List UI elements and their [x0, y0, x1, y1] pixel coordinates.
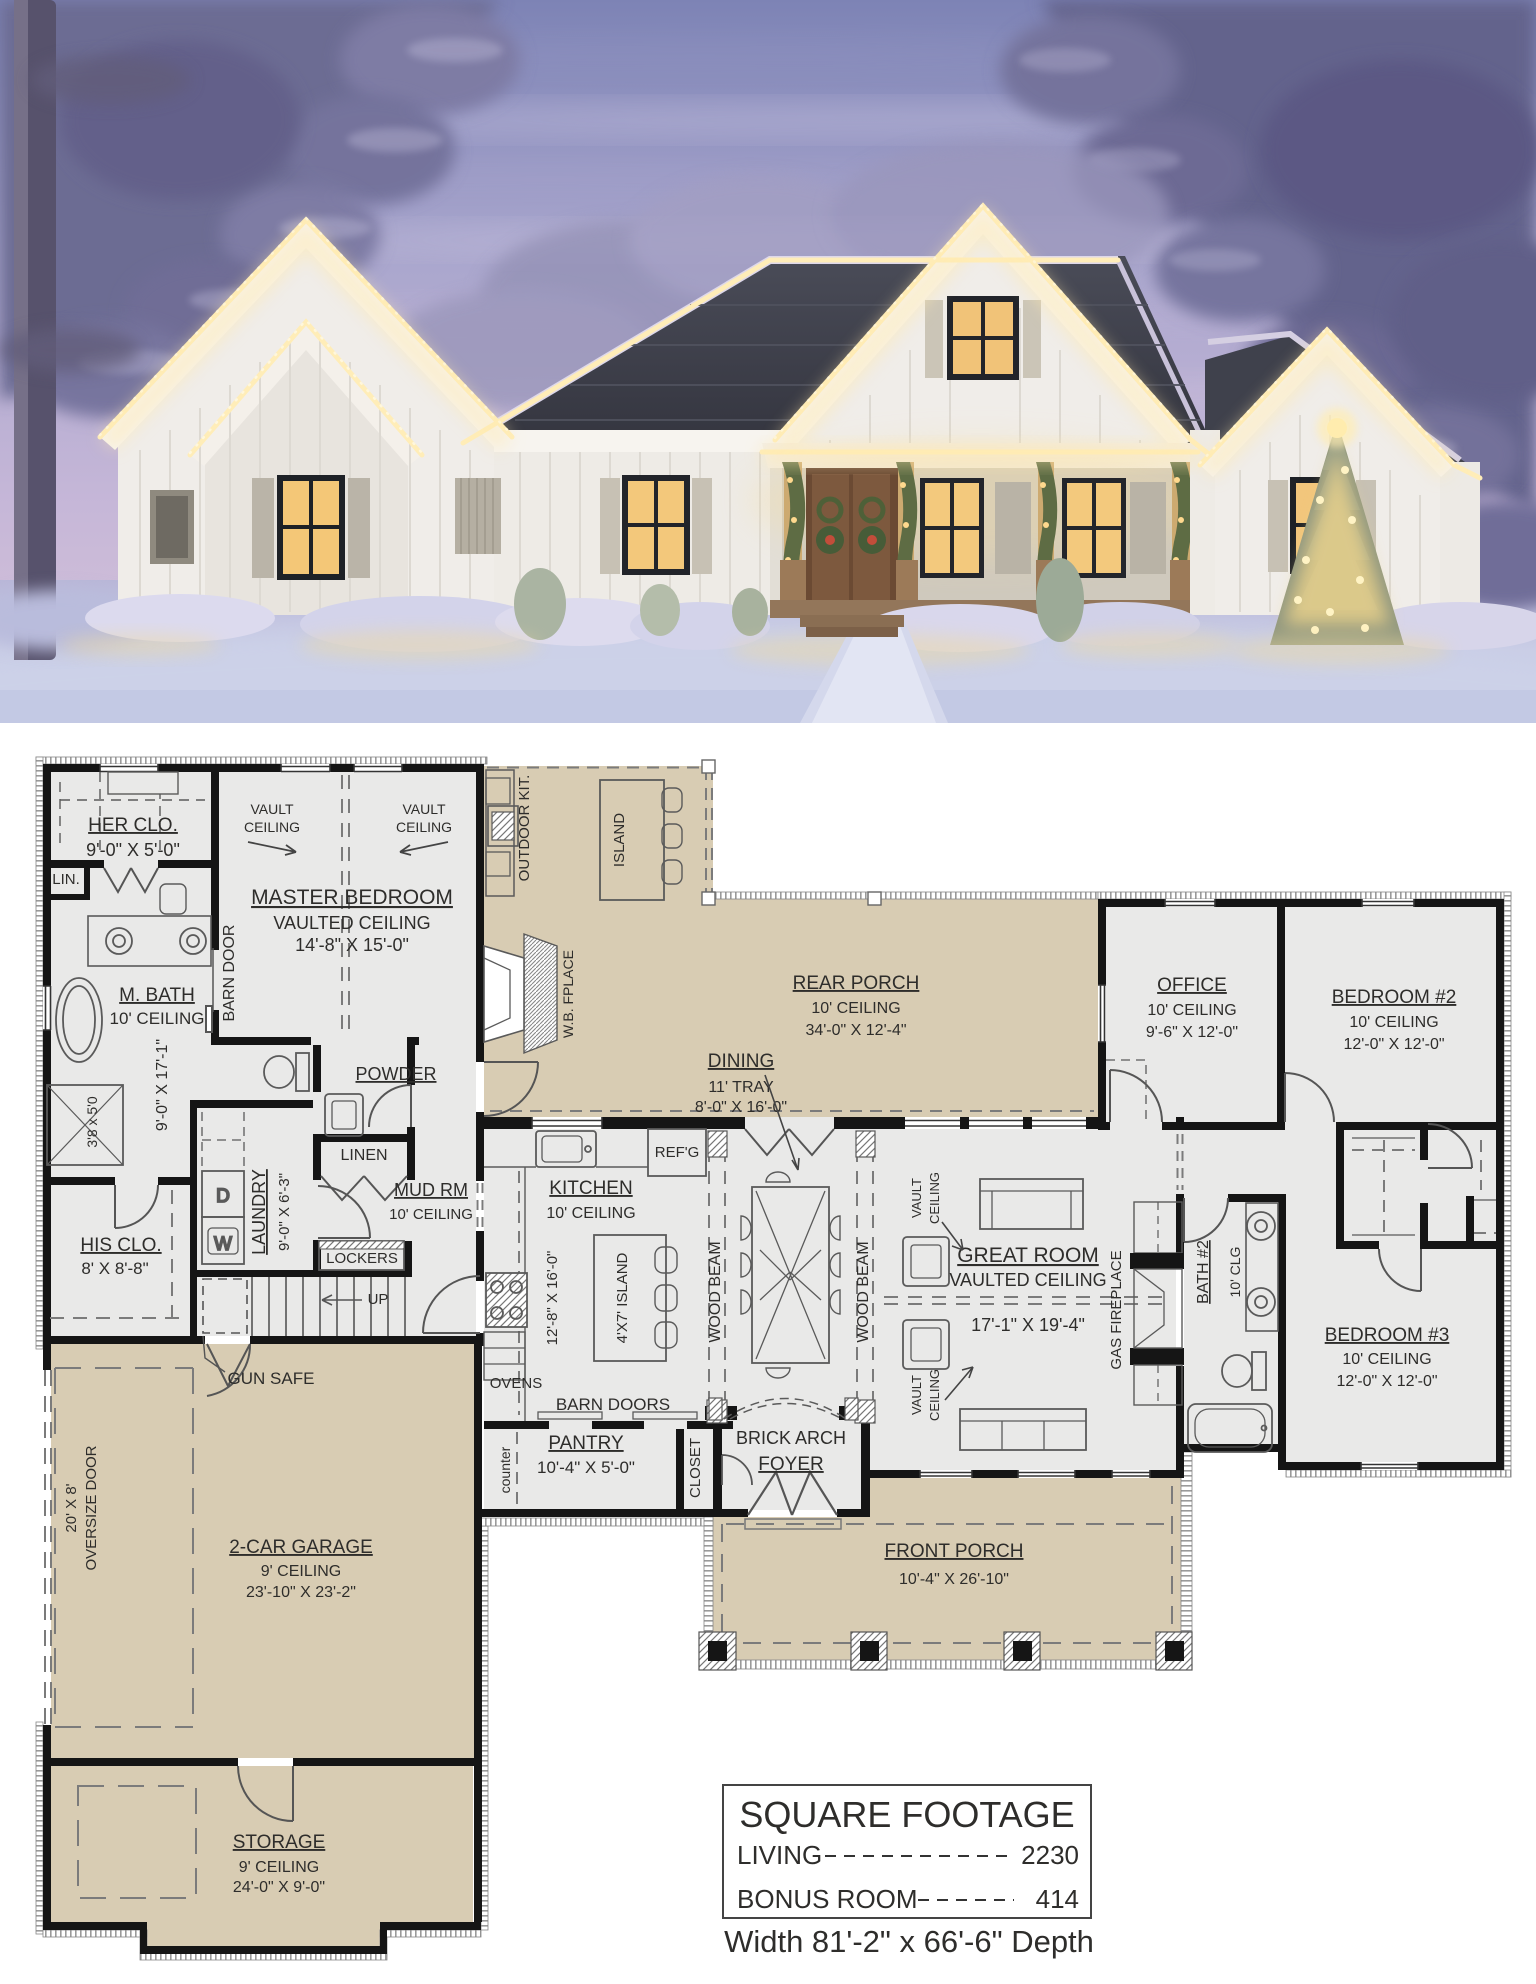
svg-text:BEDROOM #3: BEDROOM #3	[1325, 1325, 1450, 1346]
svg-text:10' CEILING: 10' CEILING	[1349, 1014, 1438, 1031]
svg-text:20' X 8': 20' X 8'	[63, 1483, 80, 1532]
svg-text:KITCHEN: KITCHEN	[549, 1178, 632, 1199]
svg-text:PANTRY: PANTRY	[548, 1433, 624, 1454]
svg-text:SQUARE FOOTAGE: SQUARE FOOTAGE	[739, 1794, 1074, 1835]
svg-text:CLOSET: CLOSET	[687, 1438, 704, 1498]
svg-text:GAS FIREPLACE: GAS FIREPLACE	[1108, 1250, 1125, 1369]
svg-text:9' CEILING: 9' CEILING	[261, 1563, 341, 1580]
svg-text:BARN DOOR: BARN DOOR	[221, 925, 238, 1022]
svg-text:D: D	[216, 1186, 230, 1207]
svg-text:OVERSIZE DOOR: OVERSIZE DOOR	[83, 1445, 100, 1570]
svg-text:12'-0" X 12'-0": 12'-0" X 12'-0"	[1343, 1036, 1444, 1053]
svg-text:VAULTED CEILING: VAULTED CEILING	[273, 913, 430, 933]
svg-text:LINEN: LINEN	[340, 1147, 387, 1164]
svg-text:VAULT: VAULT	[402, 801, 445, 817]
svg-text:UP: UP	[368, 1291, 389, 1308]
svg-text:VAULT: VAULT	[909, 1178, 924, 1218]
svg-text:REF'G: REF'G	[655, 1144, 700, 1161]
svg-text:8'-0" X 16'-0": 8'-0" X 16'-0"	[695, 1099, 787, 1116]
svg-text:Width 81'-2" x 66'-6" Depth: Width 81'-2" x 66'-6" Depth	[724, 1924, 1094, 1959]
svg-text:HIS CLO.: HIS CLO.	[80, 1235, 161, 1256]
svg-text:DINING: DINING	[708, 1051, 775, 1072]
svg-text:OVENS: OVENS	[490, 1375, 543, 1392]
svg-text:9'-6" X 12'-0": 9'-6" X 12'-0"	[1146, 1024, 1238, 1041]
svg-text:GREAT ROOM: GREAT ROOM	[957, 1244, 1099, 1267]
svg-text:2-CAR GARAGE: 2-CAR GARAGE	[229, 1537, 373, 1558]
svg-text:BEDROOM #2: BEDROOM #2	[1332, 987, 1457, 1008]
svg-text:8' X 8'-8": 8' X 8'-8"	[81, 1259, 148, 1278]
svg-text:10'-4" X 26'-10": 10'-4" X 26'-10"	[899, 1571, 1009, 1588]
svg-text:CEILING: CEILING	[244, 819, 300, 835]
svg-text:10' CEILING: 10' CEILING	[389, 1206, 473, 1223]
svg-text:LIN.: LIN.	[52, 871, 80, 888]
svg-text:23'-10" X 23'-2": 23'-10" X 23'-2"	[246, 1584, 356, 1601]
svg-text:10'-4" X 5'-0": 10'-4" X 5'-0"	[537, 1458, 635, 1477]
svg-text:10' CEILING: 10' CEILING	[811, 1000, 900, 1017]
svg-text:MASTER BEDROOM: MASTER BEDROOM	[251, 886, 453, 909]
svg-text:FRONT PORCH: FRONT PORCH	[885, 1541, 1024, 1562]
svg-text:414: 414	[1036, 1884, 1079, 1914]
svg-text:HER CLO.: HER CLO.	[88, 815, 178, 836]
svg-text:11' TRAY: 11' TRAY	[708, 1079, 774, 1096]
svg-text:ISLAND: ISLAND	[611, 813, 628, 867]
svg-text:4'X7' ISLAND: 4'X7' ISLAND	[614, 1252, 631, 1343]
svg-text:10' CLG: 10' CLG	[1227, 1247, 1243, 1298]
svg-text:LIVING: LIVING	[737, 1840, 822, 1870]
svg-text:W: W	[214, 1234, 232, 1255]
svg-text:VAULTED CEILING: VAULTED CEILING	[949, 1270, 1106, 1290]
svg-text:BATH #2: BATH #2	[1195, 1240, 1212, 1304]
svg-text:12'-0" X 12'-0": 12'-0" X 12'-0"	[1336, 1373, 1437, 1390]
svg-text:10' CEILING: 10' CEILING	[546, 1205, 635, 1222]
svg-text:24'-0" X 9'-0": 24'-0" X 9'-0"	[233, 1879, 325, 1896]
svg-text:BARN DOORS: BARN DOORS	[556, 1395, 670, 1414]
svg-text:VAULT: VAULT	[909, 1375, 924, 1415]
svg-text:LOCKERS: LOCKERS	[326, 1250, 398, 1267]
svg-text:STORAGE: STORAGE	[233, 1832, 326, 1853]
svg-text:WOOD BEAM: WOOD BEAM	[855, 1241, 872, 1342]
svg-text:3'8 x 5'0: 3'8 x 5'0	[84, 1096, 100, 1147]
svg-text:10' CEILING: 10' CEILING	[110, 1009, 205, 1028]
svg-text:POWDER: POWDER	[356, 1064, 437, 1084]
svg-text:CEILING: CEILING	[927, 1172, 942, 1224]
svg-text:GUN SAFE: GUN SAFE	[228, 1369, 315, 1388]
svg-text:VAULT: VAULT	[250, 801, 293, 817]
svg-text:BRICK ARCH: BRICK ARCH	[736, 1428, 846, 1448]
svg-text:REAR PORCH: REAR PORCH	[793, 973, 920, 994]
svg-text:OFFICE: OFFICE	[1157, 975, 1227, 996]
svg-text:9'-0" X 5'-0": 9'-0" X 5'-0"	[86, 840, 180, 860]
svg-text:9'-0" X 17'-1": 9'-0" X 17'-1"	[154, 1039, 171, 1131]
svg-text:CEILING: CEILING	[396, 819, 452, 835]
svg-text:12'-8" X 16'-0": 12'-8" X 16'-0"	[544, 1251, 561, 1346]
svg-text:BONUS ROOM: BONUS ROOM	[737, 1884, 918, 1914]
svg-text:9' CEILING: 9' CEILING	[239, 1859, 319, 1876]
svg-text:9'-0" X 6'-3": 9'-0" X 6'-3"	[276, 1173, 293, 1251]
svg-text:17'-1" X 19'-4": 17'-1" X 19'-4"	[971, 1315, 1085, 1335]
svg-text:W.B. FPLACE: W.B. FPLACE	[560, 950, 576, 1038]
svg-text:34'-0" X 12'-4": 34'-0" X 12'-4"	[805, 1022, 906, 1039]
svg-text:OUTDOOR KIT.: OUTDOOR KIT.	[516, 775, 533, 882]
svg-text:2230: 2230	[1021, 1840, 1079, 1870]
svg-text:M. BATH: M. BATH	[119, 985, 195, 1006]
svg-text:FOYER: FOYER	[758, 1454, 823, 1475]
svg-text:14'-8" X 15'-0": 14'-8" X 15'-0"	[295, 935, 409, 955]
svg-text:MUD RM: MUD RM	[394, 1180, 468, 1200]
svg-text:counter: counter	[497, 1446, 513, 1493]
svg-text:CEILING: CEILING	[927, 1369, 942, 1421]
svg-text:10' CEILING: 10' CEILING	[1342, 1351, 1431, 1368]
svg-text:10' CEILING: 10' CEILING	[1147, 1002, 1236, 1019]
svg-text:LAUNDRY: LAUNDRY	[249, 1169, 269, 1255]
svg-text:WOOD BEAM: WOOD BEAM	[707, 1241, 724, 1342]
